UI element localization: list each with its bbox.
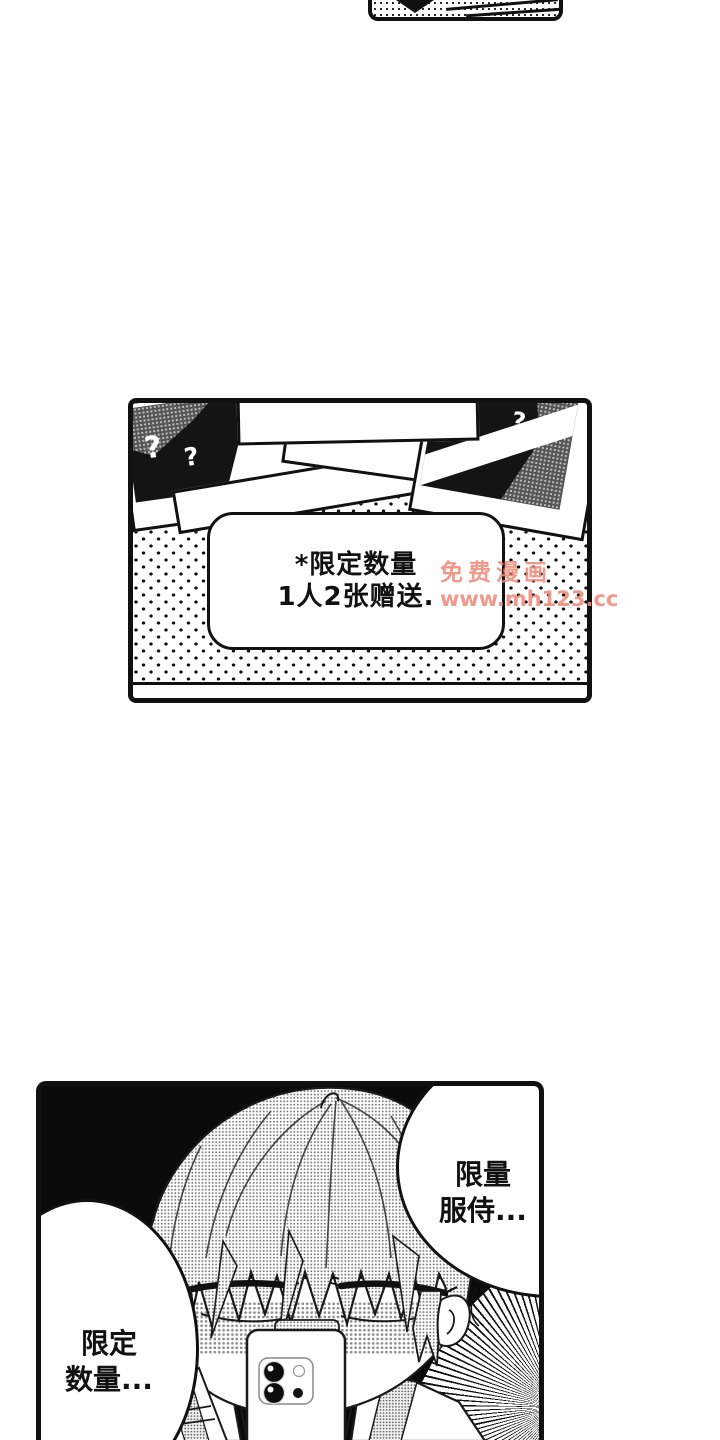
camera-sensor-dot (293, 1388, 303, 1398)
question-mark: ? (182, 443, 200, 470)
bubble-right-line-1: 限量 (427, 1157, 539, 1193)
blank-white-card (237, 398, 480, 446)
camera-lens-icon (264, 1362, 285, 1383)
panel-fragment-triangle-shape (396, 0, 434, 13)
camera-lens-icon (264, 1383, 285, 1404)
watermark-url: www.mh123.cc (440, 586, 610, 612)
speech-text: 限定 数量... (52, 1326, 166, 1398)
bubble-left-line-1: 限定 (52, 1326, 166, 1362)
speech-text: 限量 服侍... (427, 1157, 539, 1229)
watermark-text: 免费漫画 (440, 560, 610, 586)
smartphone (247, 1320, 345, 1440)
table-edge-strip (133, 682, 587, 698)
bottom-panel: 限量 服侍... 限定 数量... (36, 1081, 544, 1440)
middle-panel: ? ? ? ? ? *限定数量 1人2张赠送. (128, 398, 592, 703)
camera-flash-icon (294, 1366, 305, 1377)
bubble-right-line-2: 服侍... (427, 1193, 539, 1229)
bubble-left-line-2: 数量... (52, 1362, 166, 1398)
watermark: 免费漫画 www.mh123.cc (440, 560, 610, 612)
panel-fragment-diagonal-line (466, 8, 561, 17)
top-panel-fragment (368, 0, 563, 21)
manga-page: ? ? ? ? ? *限定数量 1人2张赠送. 免费漫画 ww (0, 0, 720, 1440)
halftone-patch (128, 398, 230, 460)
question-mark: ? (483, 398, 494, 405)
